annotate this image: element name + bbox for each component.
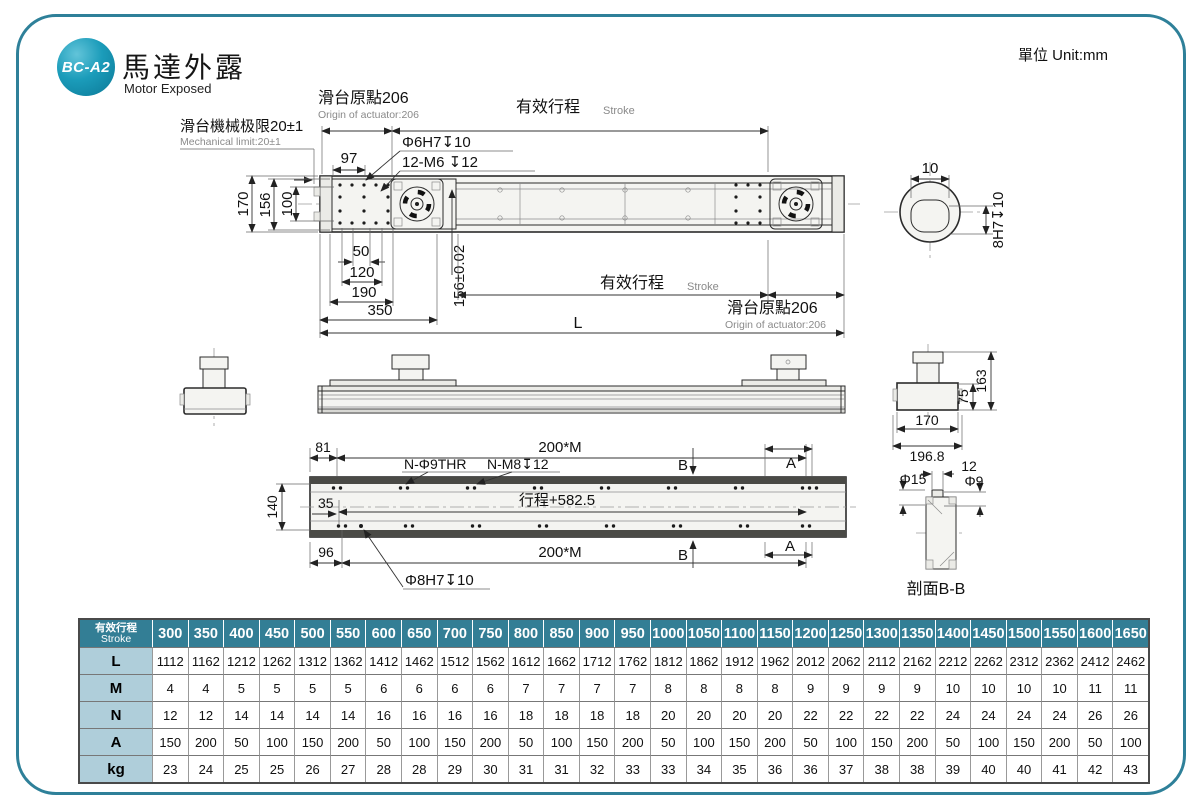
section-bb-view: Φ15 12 Φ9 剖面B-B <box>899 458 986 598</box>
value-cell: 40 <box>970 755 1006 782</box>
value-cell: 1612 <box>508 647 544 674</box>
dim-12: 12 <box>961 458 977 474</box>
value-cell: 150 <box>152 728 188 755</box>
value-cell: 1762 <box>614 647 650 674</box>
value-cell: 33 <box>650 755 686 782</box>
dim-196-8: 196.8 <box>909 448 944 464</box>
value-cell: 43 <box>1112 755 1148 782</box>
value-cell: 38 <box>899 755 935 782</box>
value-cell: 1162 <box>188 647 224 674</box>
section-a-top: A <box>786 455 796 472</box>
dim-50: 50 <box>353 243 370 260</box>
value-cell: 2062 <box>828 647 864 674</box>
value-cell: 1362 <box>330 647 366 674</box>
value-cell: 6 <box>401 674 437 701</box>
stroke-header-cell: 300 <box>152 620 188 647</box>
value-cell: 25 <box>259 755 295 782</box>
value-cell: 41 <box>1041 755 1077 782</box>
note-phi8: Φ8H7↧10 <box>405 572 474 589</box>
value-cell: 10 <box>970 674 1006 701</box>
value-cell: 2262 <box>970 647 1006 674</box>
value-cell: 50 <box>223 728 259 755</box>
value-cell: 18 <box>579 701 615 728</box>
value-cell: 29 <box>437 755 473 782</box>
stroke-header-cell: 1450 <box>970 620 1006 647</box>
dim-350: 350 <box>367 302 392 319</box>
value-cell: 24 <box>1006 701 1042 728</box>
value-cell: 36 <box>792 755 828 782</box>
value-cell: 8 <box>686 674 722 701</box>
value-cell: 200 <box>757 728 793 755</box>
dim-35: 35 <box>318 495 334 511</box>
stroke-label-en: Stroke <box>603 105 635 117</box>
value-cell: 150 <box>863 728 899 755</box>
value-cell: 8 <box>757 674 793 701</box>
value-cell: 28 <box>401 755 437 782</box>
value-cell: 35 <box>721 755 757 782</box>
value-cell: 5 <box>223 674 259 701</box>
value-cell: 1412 <box>365 647 401 674</box>
stroke-table: 有效行程 Stroke 3003504004505005506006507007… <box>78 618 1150 784</box>
section-b-top: B <box>678 457 688 474</box>
plan-view: 滑台原點206 Origin of actuator:206 有效行程 Stro… <box>180 89 860 338</box>
row-label-cell: A <box>80 728 152 755</box>
dim-156: 156 <box>257 192 274 217</box>
stroke-header-cell: 1000 <box>650 620 686 647</box>
stroke-header-cell: 400 <box>223 620 259 647</box>
dim-96: 96 <box>318 544 334 560</box>
dim-163: 163 <box>973 369 989 393</box>
stroke-header-cell: 1150 <box>757 620 793 647</box>
value-cell: 100 <box>259 728 295 755</box>
value-cell: 18 <box>543 701 579 728</box>
value-cell: 2012 <box>792 647 828 674</box>
value-cell: 38 <box>863 755 899 782</box>
stroke-header-cell: 900 <box>579 620 615 647</box>
value-cell: 36 <box>757 755 793 782</box>
value-cell: 150 <box>579 728 615 755</box>
dim-120: 120 <box>349 264 374 281</box>
value-cell: 6 <box>472 674 508 701</box>
dim-170-side: 170 <box>915 412 939 428</box>
travel-label: 行程+582.5 <box>519 492 595 509</box>
row-label-cell: kg <box>80 755 152 782</box>
value-cell: 12 <box>188 701 224 728</box>
value-cell: 50 <box>650 728 686 755</box>
value-cell: 9 <box>863 674 899 701</box>
value-cell: 200 <box>899 728 935 755</box>
value-cell: 18 <box>508 701 544 728</box>
value-cell: 16 <box>401 701 437 728</box>
value-cell: 50 <box>508 728 544 755</box>
origin-label-zh: 滑台原點206 <box>318 89 409 107</box>
value-cell: 5 <box>294 674 330 701</box>
value-cell: 2412 <box>1077 647 1113 674</box>
value-cell: 2112 <box>863 647 899 674</box>
dim-phi9: Φ9 <box>965 473 984 489</box>
section-caption: 剖面B-B <box>907 580 966 598</box>
row-label-cell: L <box>80 647 152 674</box>
value-cell: 2212 <box>935 647 971 674</box>
stroke2-label-zh: 有效行程 <box>600 274 664 292</box>
value-cell: 200 <box>188 728 224 755</box>
value-cell: 1912 <box>721 647 757 674</box>
value-cell: 31 <box>543 755 579 782</box>
value-cell: 28 <box>365 755 401 782</box>
dim-phi15: Φ15 <box>900 471 927 487</box>
stroke-header-cell: 1650 <box>1112 620 1148 647</box>
origin-label-en: Origin of actuator:206 <box>318 109 419 121</box>
value-cell: 14 <box>259 701 295 728</box>
value-cell: 20 <box>721 701 757 728</box>
stroke-header-zh: 有效行程 <box>95 623 137 634</box>
stroke-header-cell: 1350 <box>899 620 935 647</box>
stroke-header-cell: 650 <box>401 620 437 647</box>
stroke-header-cell: 350 <box>188 620 224 647</box>
value-cell: 100 <box>1112 728 1148 755</box>
value-cell: 1662 <box>543 647 579 674</box>
value-cell: 100 <box>828 728 864 755</box>
dim-170: 170 <box>235 191 252 216</box>
stroke-header-cell: 600 <box>365 620 401 647</box>
stroke-header-cell: 850 <box>543 620 579 647</box>
value-cell: 200 <box>614 728 650 755</box>
stroke-header-cell: 750 <box>472 620 508 647</box>
stroke-header-cell: 1300 <box>863 620 899 647</box>
value-cell: 10 <box>1041 674 1077 701</box>
motor-end-view: 75 163 170 196.8 <box>893 344 997 464</box>
value-cell: 1512 <box>437 647 473 674</box>
origin2-label-zh: 滑台原點206 <box>727 299 818 317</box>
value-cell: 32 <box>579 755 615 782</box>
dim-8h7: 8H7↧10 <box>990 192 1007 249</box>
stroke-header-cell: 1600 <box>1077 620 1113 647</box>
stroke-header-cell: 1500 <box>1006 620 1042 647</box>
value-cell: 2162 <box>899 647 935 674</box>
dim-75: 75 <box>955 389 971 405</box>
value-cell: 50 <box>792 728 828 755</box>
value-cell: 100 <box>686 728 722 755</box>
value-cell: 22 <box>792 701 828 728</box>
value-cell: 26 <box>294 755 330 782</box>
value-cell: 34 <box>686 755 722 782</box>
value-cell: 10 <box>935 674 971 701</box>
dim-97: 97 <box>341 150 358 167</box>
value-cell: 20 <box>686 701 722 728</box>
value-cell: 9 <box>792 674 828 701</box>
value-cell: 200 <box>330 728 366 755</box>
stroke-header-cell: 550 <box>330 620 366 647</box>
value-cell: 1562 <box>472 647 508 674</box>
value-cell: 18 <box>614 701 650 728</box>
mech-limit-en: Mechanical limit:20±1 <box>180 136 281 148</box>
value-cell: 4 <box>152 674 188 701</box>
value-cell: 16 <box>472 701 508 728</box>
dim-200m-top: 200*M <box>538 439 581 456</box>
value-cell: 37 <box>828 755 864 782</box>
dim-100: 100 <box>279 191 296 216</box>
value-cell: 26 <box>1112 701 1148 728</box>
stroke-header-cell: 800 <box>508 620 544 647</box>
value-cell: 1262 <box>259 647 295 674</box>
value-cell: 150 <box>294 728 330 755</box>
stroke-header-cell: 1550 <box>1041 620 1077 647</box>
value-cell: 2312 <box>1006 647 1042 674</box>
value-cell: 200 <box>1041 728 1077 755</box>
dim-190: 190 <box>351 284 376 301</box>
value-cell: 14 <box>294 701 330 728</box>
value-cell: 6 <box>437 674 473 701</box>
value-cell: 22 <box>863 701 899 728</box>
value-cell: 7 <box>508 674 544 701</box>
stroke-header-cell: 450 <box>259 620 295 647</box>
dim-156-tol: 156±0.02 <box>451 245 468 307</box>
value-cell: 9 <box>828 674 864 701</box>
shaft-end-view: 10 8H7↧10 <box>884 160 1007 262</box>
value-cell: 1962 <box>757 647 793 674</box>
stroke-header-cell: 1100 <box>721 620 757 647</box>
value-cell: 1812 <box>650 647 686 674</box>
value-cell: 1862 <box>686 647 722 674</box>
value-cell: 20 <box>650 701 686 728</box>
dim-L: L <box>574 315 583 332</box>
stroke2-label-en: Stroke <box>687 281 719 293</box>
value-cell: 26 <box>1077 701 1113 728</box>
value-cell: 150 <box>1006 728 1042 755</box>
value-cell: 10 <box>1006 674 1042 701</box>
value-cell: 42 <box>1077 755 1113 782</box>
value-cell: 40 <box>1006 755 1042 782</box>
value-cell: 33 <box>614 755 650 782</box>
stroke-header-en: Stroke <box>101 634 131 645</box>
stroke-header-cell: 1250 <box>828 620 864 647</box>
value-cell: 150 <box>721 728 757 755</box>
stroke-label-zh: 有效行程 <box>516 98 580 116</box>
stroke-header-first-cell: 有效行程 Stroke <box>80 620 152 647</box>
value-cell: 150 <box>437 728 473 755</box>
value-cell: 100 <box>401 728 437 755</box>
stroke-header-cell: 500 <box>294 620 330 647</box>
carriage-end-view <box>180 348 250 426</box>
row-label-cell: N <box>80 701 152 728</box>
mech-limit-zh: 滑台機械极限20±1 <box>180 118 303 135</box>
value-cell: 11 <box>1077 674 1113 701</box>
dim-200m-bottom: 200*M <box>538 544 581 561</box>
value-cell: 39 <box>935 755 971 782</box>
value-cell: 12 <box>152 701 188 728</box>
value-cell: 24 <box>188 755 224 782</box>
bottom-view: 81 200*M A B N-Φ9THR N-M8↧12 140 35 行程+5… <box>264 439 856 589</box>
stroke-header-cell: 950 <box>614 620 650 647</box>
value-cell: 24 <box>935 701 971 728</box>
value-cell: 7 <box>543 674 579 701</box>
value-cell: 14 <box>330 701 366 728</box>
value-cell: 1212 <box>223 647 259 674</box>
stroke-header-cell: 1400 <box>935 620 971 647</box>
value-cell: 5 <box>259 674 295 701</box>
origin2-label-en: Origin of actuator:206 <box>725 319 826 331</box>
dim-81: 81 <box>315 439 331 455</box>
dim-140: 140 <box>264 495 280 519</box>
value-cell: 7 <box>614 674 650 701</box>
value-cell: 22 <box>828 701 864 728</box>
value-cell: 8 <box>721 674 757 701</box>
value-cell: 24 <box>970 701 1006 728</box>
stroke-header-cell: 1050 <box>686 620 722 647</box>
side-elevation-view <box>318 355 845 413</box>
value-cell: 2462 <box>1112 647 1148 674</box>
value-cell: 20 <box>757 701 793 728</box>
hole-note-1: Φ6H7↧10 <box>402 134 471 151</box>
value-cell: 50 <box>935 728 971 755</box>
dim-10: 10 <box>922 160 939 177</box>
value-cell: 2362 <box>1041 647 1077 674</box>
stroke-header-cell: 1200 <box>792 620 828 647</box>
value-cell: 14 <box>223 701 259 728</box>
note-phi9: N-Φ9THR <box>404 456 467 472</box>
value-cell: 9 <box>899 674 935 701</box>
value-cell: 8 <box>650 674 686 701</box>
value-cell: 30 <box>472 755 508 782</box>
row-label-cell: M <box>80 674 152 701</box>
value-cell: 4 <box>188 674 224 701</box>
value-cell: 31 <box>508 755 544 782</box>
value-cell: 6 <box>365 674 401 701</box>
hole-note-2: 12-M6 ↧12 <box>402 154 478 171</box>
value-cell: 100 <box>970 728 1006 755</box>
section-b-bottom: B <box>678 547 688 564</box>
note-m8: N-M8↧12 <box>487 456 549 472</box>
value-cell: 24 <box>1041 701 1077 728</box>
value-cell: 200 <box>472 728 508 755</box>
value-cell: 1312 <box>294 647 330 674</box>
value-cell: 50 <box>1077 728 1113 755</box>
value-cell: 27 <box>330 755 366 782</box>
value-cell: 5 <box>330 674 366 701</box>
value-cell: 22 <box>899 701 935 728</box>
value-cell: 25 <box>223 755 259 782</box>
value-cell: 23 <box>152 755 188 782</box>
value-cell: 16 <box>365 701 401 728</box>
value-cell: 11 <box>1112 674 1148 701</box>
section-a-bottom: A <box>785 538 795 555</box>
value-cell: 1462 <box>401 647 437 674</box>
value-cell: 100 <box>543 728 579 755</box>
value-cell: 1712 <box>579 647 615 674</box>
value-cell: 7 <box>579 674 615 701</box>
value-cell: 16 <box>437 701 473 728</box>
value-cell: 1112 <box>152 647 188 674</box>
stroke-header-cell: 700 <box>437 620 473 647</box>
value-cell: 50 <box>365 728 401 755</box>
